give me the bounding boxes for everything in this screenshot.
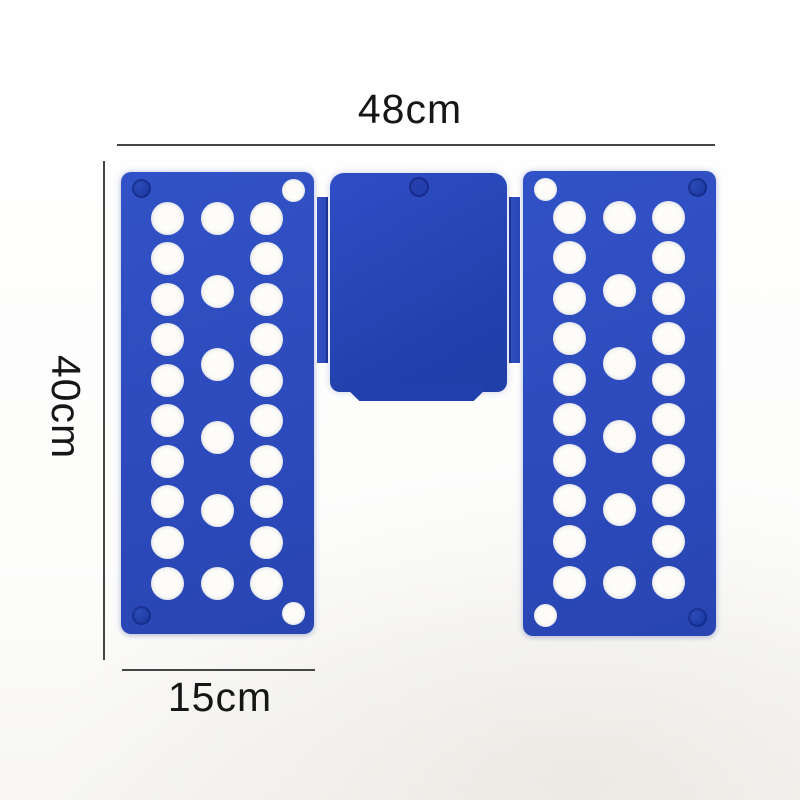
fold-hole [553, 484, 586, 517]
fold-hole [151, 323, 184, 356]
fold-hole [151, 404, 184, 437]
fold-hole [603, 493, 636, 526]
fold-hole [250, 445, 283, 478]
fold-hole [250, 567, 283, 600]
fold-hole [201, 275, 234, 308]
fold-hole [603, 566, 636, 599]
corner-rivet [132, 179, 151, 198]
fold-hole [250, 283, 283, 316]
fold-hole [553, 241, 586, 274]
corner-hole [534, 604, 557, 627]
corner-hole [282, 179, 305, 202]
right-hinge [509, 197, 520, 363]
fold-hole [151, 242, 184, 275]
fold-hole [553, 363, 586, 396]
fold-hole [652, 525, 685, 558]
fold-hole [250, 364, 283, 397]
product-dimension-diagram: 48cm 40cm 15cm [0, 0, 800, 800]
fold-hole [553, 566, 586, 599]
fold-hole [603, 420, 636, 453]
fold-hole [250, 242, 283, 275]
fold-hole [151, 364, 184, 397]
center-panel [330, 173, 507, 392]
fold-hole [652, 201, 685, 234]
corner-hole [282, 602, 305, 625]
center-dimple [409, 177, 429, 197]
corner-hole [534, 178, 557, 201]
fold-hole [652, 403, 685, 436]
fold-hole [553, 201, 586, 234]
fold-hole [652, 566, 685, 599]
fold-hole [553, 322, 586, 355]
fold-hole [652, 241, 685, 274]
fold-hole [201, 348, 234, 381]
fold-hole [250, 404, 283, 437]
fold-hole [652, 484, 685, 517]
fold-hole [603, 274, 636, 307]
fold-hole [201, 494, 234, 527]
panel-width-dimension-line [122, 669, 315, 671]
fold-hole [151, 202, 184, 235]
right-fold-panel [523, 171, 716, 636]
fold-hole [151, 283, 184, 316]
height-dimension-label: 40cm [43, 337, 89, 477]
fold-hole [201, 567, 234, 600]
fold-hole [652, 363, 685, 396]
fold-hole [652, 444, 685, 477]
fold-hole [553, 444, 586, 477]
corner-rivet [132, 606, 151, 625]
fold-hole [553, 403, 586, 436]
corner-rivet [688, 178, 707, 197]
fold-hole [201, 202, 234, 235]
fold-hole [250, 526, 283, 559]
fold-hole [151, 526, 184, 559]
fold-hole [652, 322, 685, 355]
width-dimension-label: 48cm [310, 86, 510, 133]
fold-hole [250, 202, 283, 235]
fold-hole [603, 347, 636, 380]
left-hinge [317, 197, 328, 363]
fold-hole [603, 201, 636, 234]
fold-hole [553, 525, 586, 558]
fold-hole [201, 421, 234, 454]
left-fold-panel [121, 172, 314, 634]
width-dimension-line [117, 144, 715, 146]
center-bottom-tab [350, 387, 483, 401]
height-dimension-line [103, 161, 105, 660]
fold-hole [652, 282, 685, 315]
fold-hole [250, 323, 283, 356]
fold-hole [151, 445, 184, 478]
corner-rivet [688, 608, 707, 627]
fold-hole [151, 567, 184, 600]
fold-hole [553, 282, 586, 315]
fold-hole [250, 485, 283, 518]
fold-hole [151, 485, 184, 518]
panel-width-dimension-label: 15cm [125, 674, 315, 721]
